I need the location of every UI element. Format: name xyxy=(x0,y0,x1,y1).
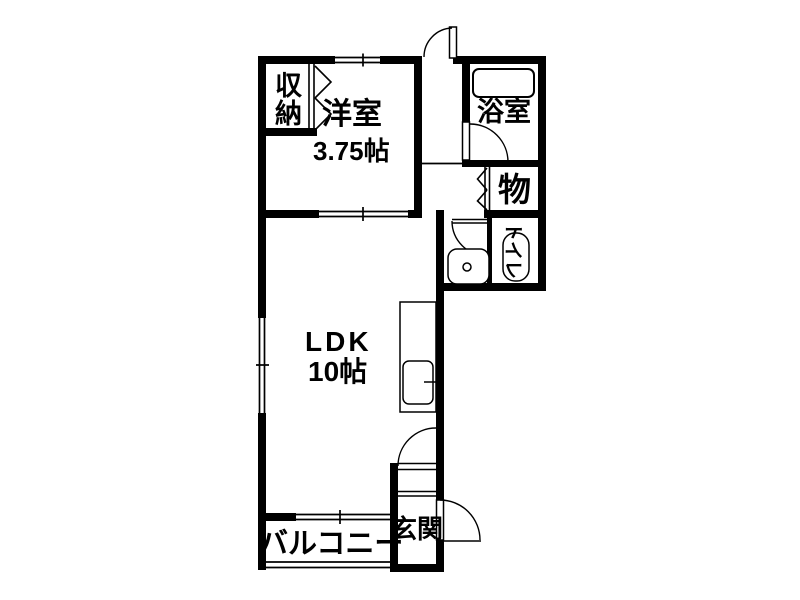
wall-bath-left xyxy=(462,56,470,122)
wall-genkan-bottom xyxy=(390,564,444,572)
washbasin-fixture xyxy=(448,249,489,284)
bathtub-fixture xyxy=(473,69,534,97)
window-left-ldk xyxy=(256,318,269,413)
room-label-bathroom: 浴室 xyxy=(477,99,531,126)
room-label-ldk: LDK xyxy=(305,328,372,356)
wall-bath-bottom xyxy=(462,160,546,167)
room-size-western-room: 3.75帖 xyxy=(313,138,390,164)
wall-ldk-bottom-left xyxy=(258,513,296,521)
floorplan-drawing xyxy=(0,0,800,600)
room-size-ldk: 10帖 xyxy=(308,358,367,386)
balcony-railing xyxy=(266,562,391,568)
genkan-step xyxy=(398,492,436,497)
room-label-closet: 収納 xyxy=(272,71,299,127)
room-label-balcony: バルコニー xyxy=(259,530,403,559)
floorplan-canvas: 収納 洋室 3.75帖 浴室 物 トイレ LDK 10帖 玄関 バルコニー xyxy=(0,0,800,600)
wall-yoshitsu-right xyxy=(414,56,422,218)
wall-top-left xyxy=(258,56,335,64)
wall-closet-bottom xyxy=(258,128,317,136)
wall-left-upper xyxy=(258,56,266,318)
wall-washroom-bottom xyxy=(436,283,546,291)
bathroom-door xyxy=(463,122,509,162)
wall-yoshitsu-bottom-left xyxy=(258,210,319,218)
room-label-storage: 物 xyxy=(498,173,531,206)
sliding-door-yoshitsu-ldk xyxy=(319,207,408,221)
window-top-yoshitsu xyxy=(335,54,380,67)
front-door xyxy=(437,500,482,541)
kitchen-counter xyxy=(400,302,437,412)
room-label-western-room: 洋室 xyxy=(322,100,382,130)
washbasin-drain xyxy=(463,263,471,271)
genkan-ldk-door xyxy=(398,428,436,470)
rear-door xyxy=(424,27,457,58)
sliding-door-balcony xyxy=(296,510,390,524)
room-label-toilet: トイレ xyxy=(503,222,522,279)
storage-bifold-door xyxy=(478,167,490,210)
wall-ldk-right xyxy=(436,210,444,500)
wall-storage-bottom xyxy=(484,210,546,218)
wall-right-upper xyxy=(538,56,546,291)
